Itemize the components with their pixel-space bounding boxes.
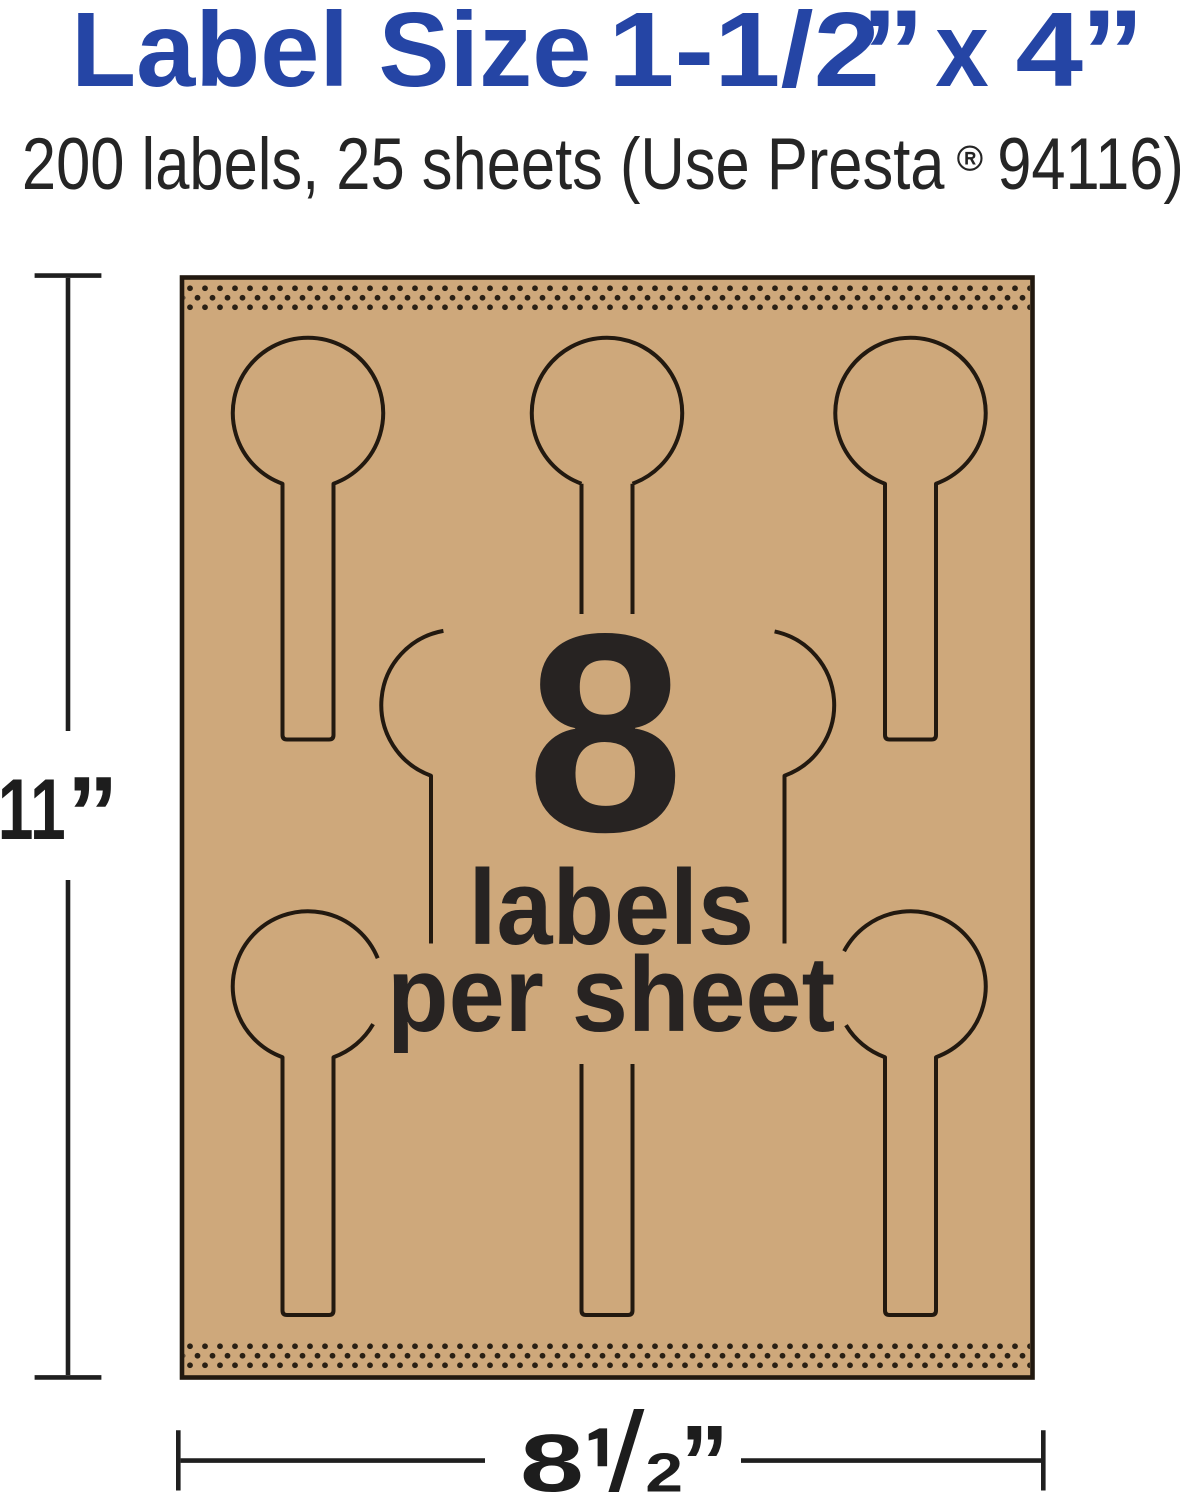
svg-text:per sheet: per sheet [387, 934, 835, 1054]
svg-text:94116): 94116) [997, 123, 1184, 205]
svg-text:”: ” [1081, 0, 1145, 120]
svg-text:8: 8 [520, 1418, 584, 1500]
svg-text:4: 4 [1016, 0, 1084, 109]
svg-text:Label Size: Label Size [71, 0, 591, 109]
svg-text:11: 11 [0, 762, 66, 858]
svg-text:”: ” [680, 1402, 729, 1500]
svg-text:”: ” [861, 0, 925, 120]
svg-text:8: 8 [527, 575, 684, 891]
svg-text:x: x [935, 0, 989, 109]
svg-text:”: ” [67, 755, 119, 871]
svg-text:1-1/2: 1-1/2 [608, 0, 880, 109]
svg-text:2: 2 [645, 1443, 683, 1500]
svg-text:200 labels, 25 sheets (Use Pre: 200 labels, 25 sheets (Use Presta [22, 123, 945, 205]
